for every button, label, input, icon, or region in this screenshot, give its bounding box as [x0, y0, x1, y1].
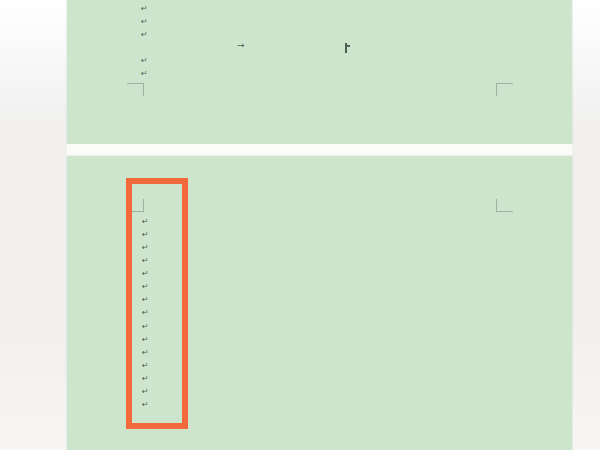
page-gap — [67, 144, 572, 156]
highlight-annotation-box — [126, 178, 188, 429]
document-page-1[interactable] — [67, 0, 572, 144]
document-scroll-area[interactable]: ↵↵↵↵↵→↵↵↵↵↵↵↵↵↵↵↵↵↵↵↵ — [0, 0, 600, 450]
